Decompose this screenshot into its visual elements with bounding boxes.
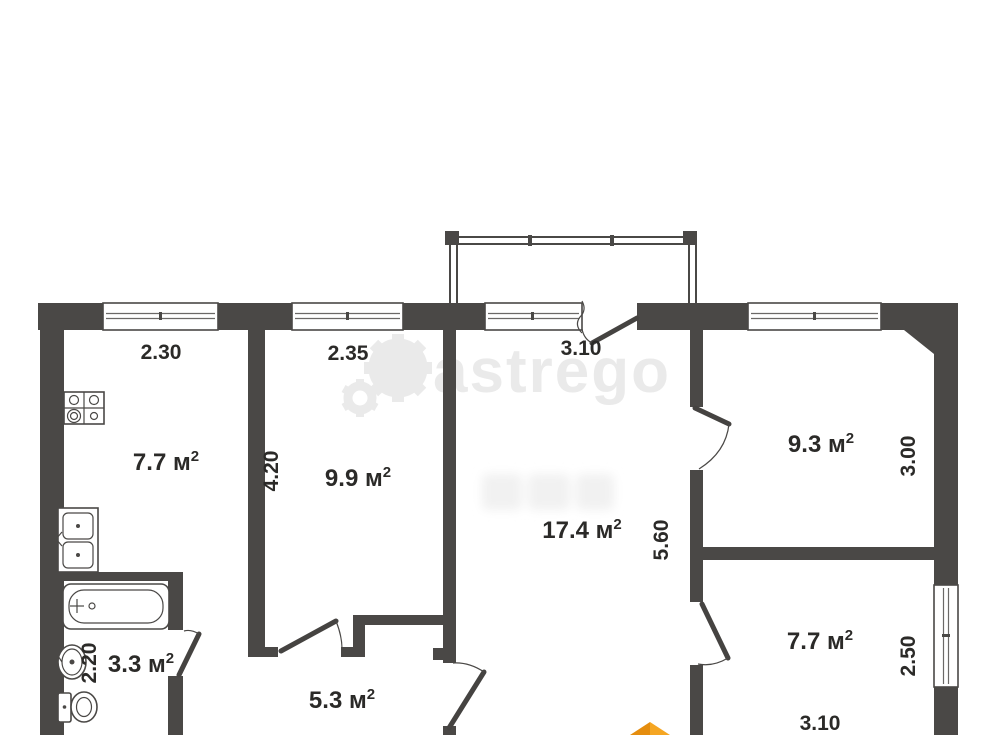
stove-icon bbox=[64, 392, 104, 424]
label-hallway: 5.3 м2 bbox=[309, 686, 375, 714]
window-room2 bbox=[292, 303, 403, 330]
dim-balcony-width: 3.10 bbox=[561, 337, 602, 360]
window-room4 bbox=[934, 585, 958, 687]
logo-mark bbox=[630, 722, 670, 735]
door-entrance bbox=[449, 663, 484, 728]
door-bathroom bbox=[179, 630, 199, 675]
door-room4 bbox=[698, 604, 728, 665]
dim-room3-height: 3.00 bbox=[897, 436, 920, 477]
label-room3: 9.3 м2 bbox=[788, 430, 854, 458]
toilet-icon bbox=[58, 692, 97, 722]
floorplan-page: astrego bbox=[0, 0, 1000, 735]
label-kitchen: 7.7 м2 bbox=[133, 448, 199, 476]
window-room3 bbox=[748, 303, 881, 330]
bathtub-icon bbox=[63, 584, 169, 629]
floorplan-drawing: astrego bbox=[0, 0, 1000, 735]
dim-room2-height: 4.20 bbox=[260, 451, 283, 492]
label-bathroom: 3.3 м2 bbox=[108, 650, 174, 678]
kitchen-sink-icon bbox=[50, 508, 98, 572]
label-living: 17.4 м2 bbox=[542, 516, 621, 544]
dim-room4-width: 3.10 bbox=[800, 712, 841, 735]
balcony-railing bbox=[445, 231, 697, 303]
dim-hall-height: 5.60 bbox=[650, 520, 673, 561]
door-room2 bbox=[281, 621, 342, 651]
room-labels: 7.7 м2 9.9 м2 17.4 м2 9.3 м2 7.7 м2 3.3 … bbox=[108, 430, 854, 714]
label-room2: 9.9 м2 bbox=[325, 464, 391, 492]
dim-kitchen-width: 2.30 bbox=[141, 341, 182, 364]
window-kitchen bbox=[103, 303, 218, 330]
door-room3 bbox=[695, 408, 729, 469]
watermark: astrego bbox=[342, 334, 671, 510]
dim-room4-window: 2.50 bbox=[897, 636, 920, 677]
window-balcony bbox=[485, 301, 584, 333]
watermark-faint-fragment bbox=[482, 474, 614, 510]
watermark-brand: astrego bbox=[433, 337, 671, 406]
dim-room2-width: 2.35 bbox=[328, 342, 369, 365]
label-room4: 7.7 м2 bbox=[787, 627, 853, 655]
dim-bath-height: 2.20 bbox=[78, 643, 101, 684]
